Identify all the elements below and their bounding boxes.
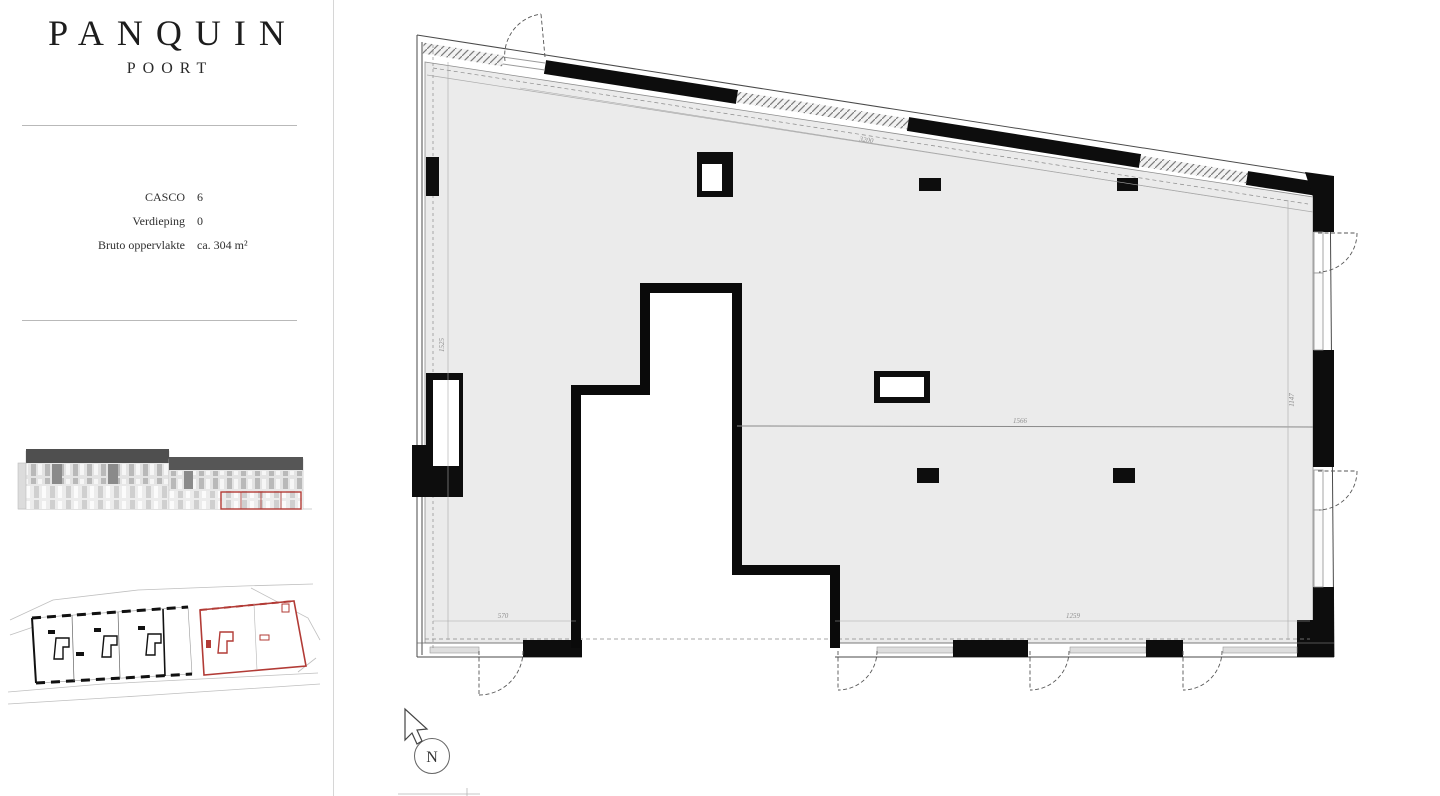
dimension-label-left: 1525: [438, 338, 446, 353]
mouse-cursor-icon: [405, 709, 427, 744]
sidebar: PANQUIN POORT CASCO 6 Verdieping 0 Bruto…: [0, 0, 334, 796]
info-row-casco: CASCO 6: [0, 190, 333, 204]
brand-title: PANQUIN: [0, 12, 333, 54]
north-label: N: [426, 749, 438, 766]
info-label: Verdieping: [0, 214, 185, 228]
elevation-roof-right: [169, 457, 303, 470]
info-label: Bruto oppervlakte: [0, 238, 185, 252]
info-value: 6: [197, 190, 203, 204]
divider-top: [22, 125, 297, 126]
building-elevation-thumbnail: [16, 433, 316, 528]
elevation-roof-left: [26, 449, 169, 463]
floor-area: [425, 62, 1313, 643]
dimension-label-right: 1147: [1288, 393, 1296, 407]
info-value: 0: [197, 214, 203, 228]
brand: PANQUIN POORT: [0, 12, 333, 78]
dimension-label-bottom-right: 1259: [1066, 612, 1081, 620]
siteplan-unit-highlight: [200, 601, 306, 675]
page-edge-artifact: [398, 788, 480, 796]
info-row-oppervlakte: Bruto oppervlakte ca. 304 m²: [0, 238, 333, 252]
page-canvas: PANQUIN POORT CASCO 6 Verdieping 0 Bruto…: [0, 0, 1440, 796]
north-indicator: N: [415, 739, 450, 774]
info-label: CASCO: [0, 190, 185, 204]
site-plan-thumbnail: [8, 580, 323, 708]
divider-middle: [22, 320, 297, 321]
dimension-label-partition: 1566: [1013, 417, 1028, 425]
info-row-verdieping: Verdieping 0: [0, 214, 333, 228]
unit-info: CASCO 6 Verdieping 0 Bruto oppervlakte c…: [0, 190, 333, 262]
dimension-label-bottom-left: 570: [498, 612, 509, 620]
brand-subtitle: POORT: [0, 60, 333, 78]
info-value: ca. 304 m²: [197, 238, 248, 252]
